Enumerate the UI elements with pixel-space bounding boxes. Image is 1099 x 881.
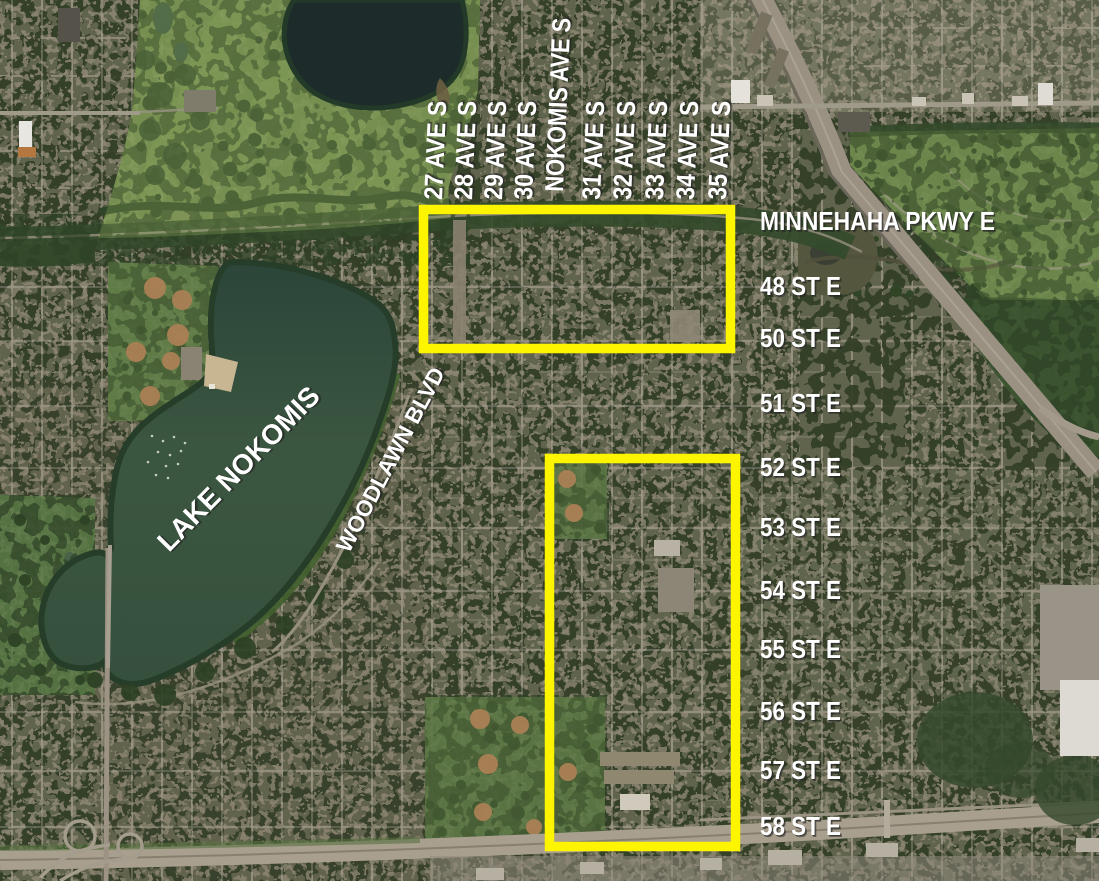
svg-text:54 ST E: 54 ST E [760, 575, 841, 605]
svg-text:32 AVE S: 32 AVE S [607, 100, 641, 200]
svg-text:50 ST E: 50 ST E [760, 323, 841, 353]
svg-text:53 ST E: 53 ST E [760, 512, 841, 542]
svg-text:33 AVE S: 33 AVE S [639, 100, 673, 200]
svg-text:35 AVE S: 35 AVE S [702, 100, 736, 200]
svg-text:55 ST E: 55 ST E [760, 634, 841, 664]
svg-text:30 AVE S: 30 AVE S [508, 100, 542, 200]
svg-text:48 ST E: 48 ST E [760, 271, 841, 301]
svg-text:34 AVE S: 34 AVE S [670, 100, 704, 200]
svg-text:MINNEHAHA PKWY E: MINNEHAHA PKWY E [760, 206, 995, 236]
svg-text:57 ST E: 57 ST E [760, 755, 841, 785]
svg-text:52 ST E: 52 ST E [760, 452, 841, 482]
svg-text:51 ST E: 51 ST E [760, 388, 841, 418]
svg-text:58 ST E: 58 ST E [760, 811, 841, 841]
svg-text:28 AVE S: 28 AVE S [448, 100, 482, 200]
svg-text:29 AVE S: 29 AVE S [478, 100, 512, 200]
svg-text:27 AVE S: 27 AVE S [418, 100, 452, 200]
svg-text:56 ST E: 56 ST E [760, 696, 841, 726]
svg-text:31 AVE S: 31 AVE S [576, 100, 610, 200]
